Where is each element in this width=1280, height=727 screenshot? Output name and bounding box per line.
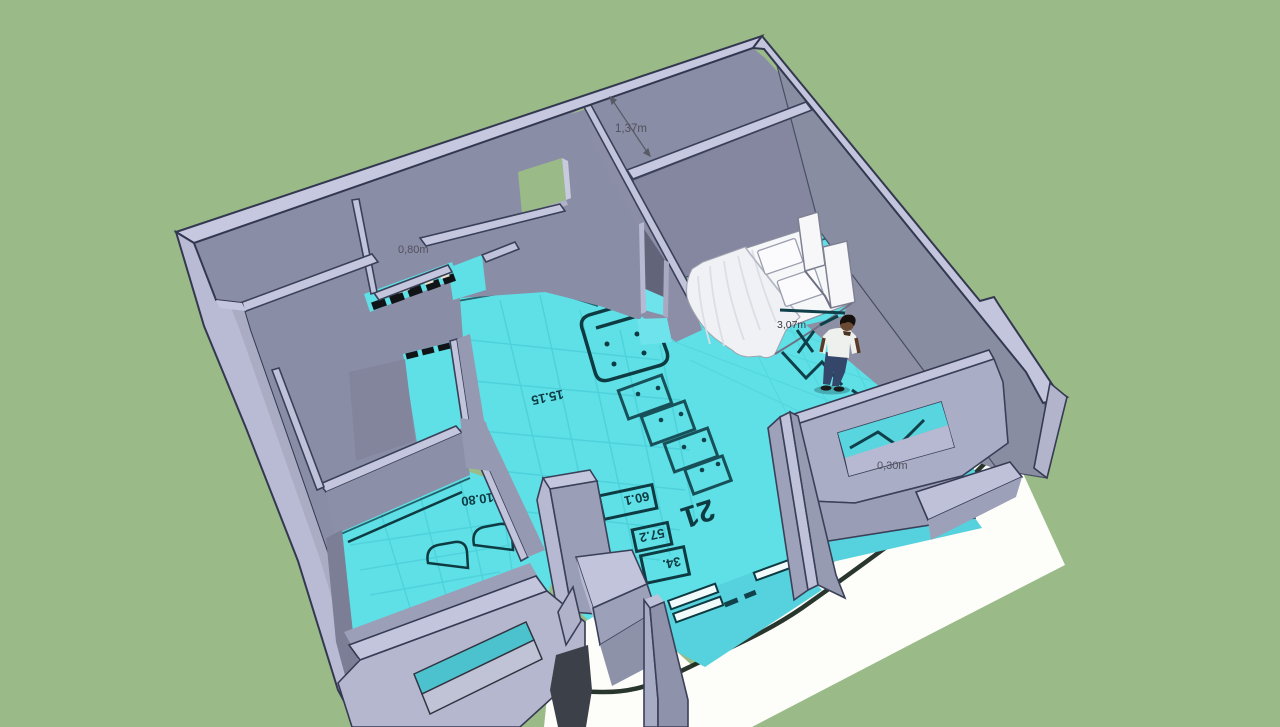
svg-text:0,30m: 0,30m bbox=[877, 460, 908, 472]
svg-text:0,80m: 0,80m bbox=[398, 244, 429, 256]
svg-text:3,07m: 3,07m bbox=[777, 319, 806, 331]
svg-text:1,37m: 1,37m bbox=[615, 123, 647, 135]
